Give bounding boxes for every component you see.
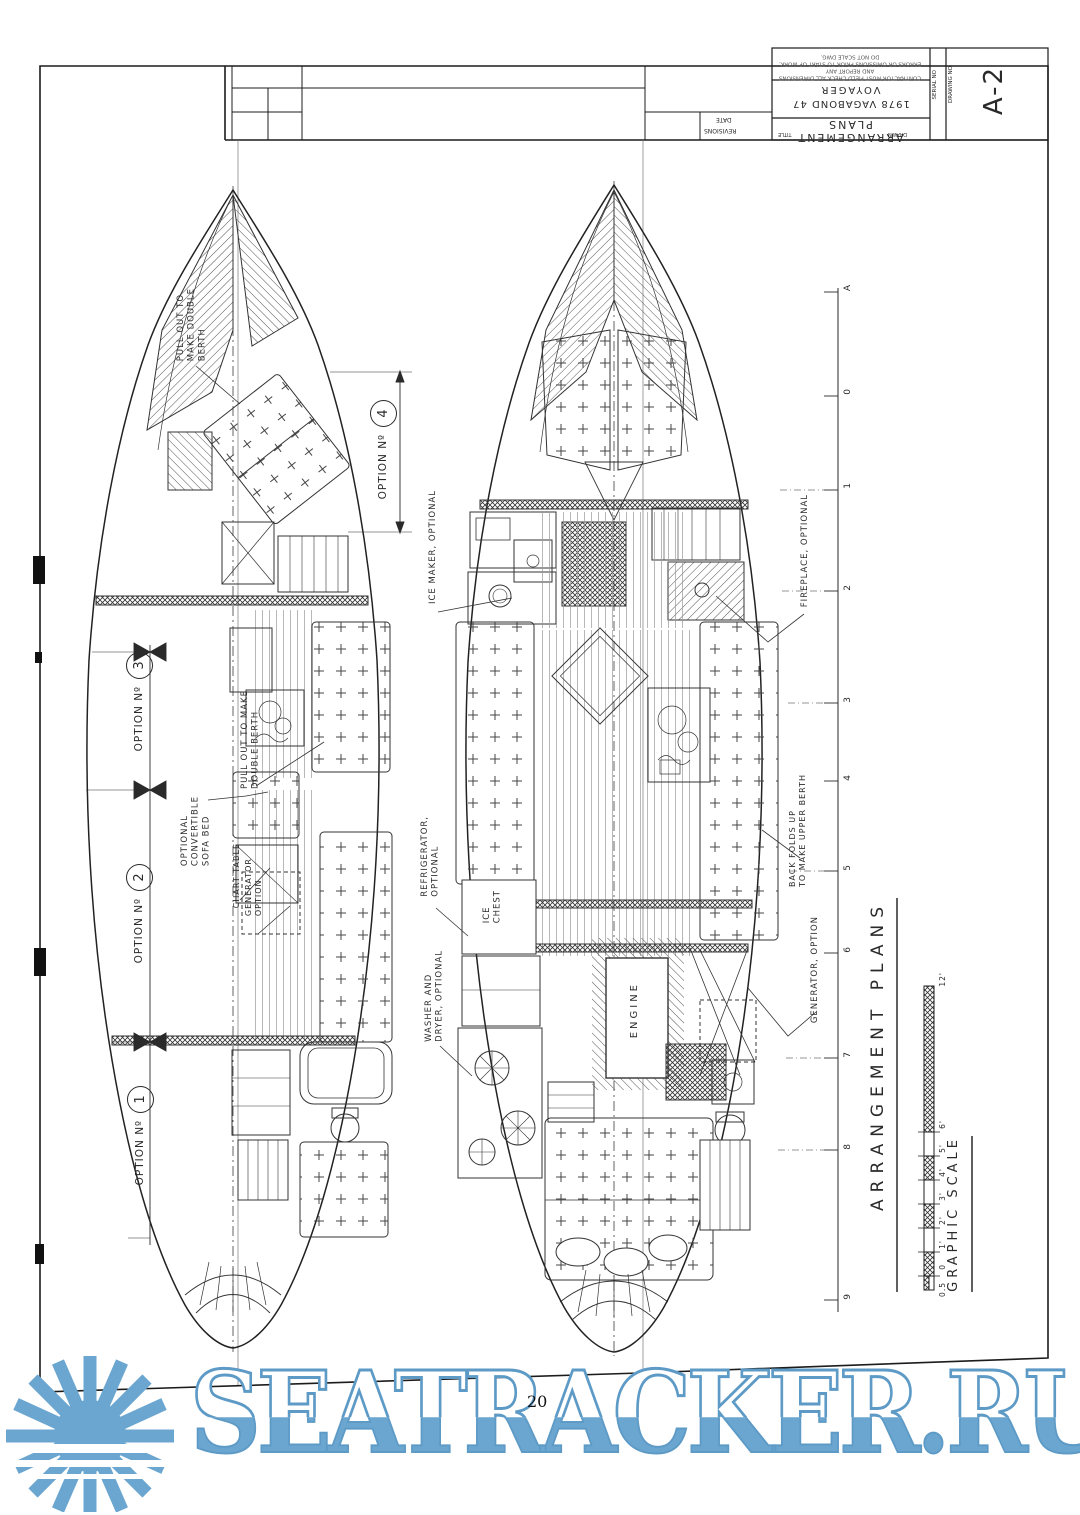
station-label-2: 2: [843, 584, 854, 591]
station-label-3: 3: [843, 696, 854, 703]
option-1-number: 1: [127, 1086, 154, 1113]
date-label: DATE: [716, 116, 732, 123]
page-number: 20: [527, 1392, 547, 1411]
seatracker-sun-logo-icon: [2, 1352, 188, 1512]
station-line: [778, 288, 838, 1312]
pull-out-berth-note: PULL OUT TO MAKE DOUBLE BERTH: [176, 288, 208, 361]
drawing-no-label: DRAWING NO: [948, 66, 955, 103]
scale-tick-2: 2': [938, 1216, 947, 1225]
boat-name-line-1: VOYAGER: [800, 84, 900, 95]
graphic-scale-label: GRAPHIC SCALE: [946, 1136, 962, 1292]
arrangement-drawing: [0, 0, 1080, 1515]
option-2-label: OPTION Nº: [133, 898, 146, 963]
option-1-digit: 1: [133, 1095, 148, 1103]
refrigerator-note: REFRIGERATOR, OPTIONAL: [420, 816, 441, 897]
graphic-scale-bar: [918, 986, 940, 1290]
station-label-a: A: [843, 284, 854, 291]
main-plan-interior: [456, 190, 778, 1320]
note-line-2: ERRORS OR OMISSIONS PRIOR TO START OF WO…: [774, 52, 926, 66]
scale-tick-4: 4': [938, 1168, 947, 1177]
footer-drawing-title: ARRANGEMENT PLANS: [868, 900, 889, 1211]
scale-tick-0: 0: [938, 1264, 947, 1270]
station-label-8: 8: [843, 1143, 854, 1150]
option-4-number: 4: [370, 400, 397, 427]
ice-chest-label: ICE CHEST: [482, 890, 503, 923]
chart-table-note: CHART TABLE: [232, 843, 242, 908]
ice-maker-note: ICE MAKER, OPTIONAL: [428, 490, 439, 604]
drawing-number: A-2: [978, 66, 1011, 115]
station-label-4: 4: [843, 774, 854, 781]
engine-label: ENGINE: [629, 982, 642, 1038]
scale-tick-3: 3': [938, 1192, 947, 1201]
station-label-1: 1: [843, 482, 854, 489]
option-2-digit: 2: [132, 873, 147, 881]
drawn-label: DRAWN: [888, 131, 907, 137]
scale-tick-12: 12': [938, 972, 947, 987]
option-4-label: OPTION Nº: [377, 434, 390, 499]
fold-out-berth-note: PULL OUT TO MAKE DOUBLE BERTH: [240, 690, 261, 789]
station-label-6: 6: [843, 946, 854, 953]
generator-option-note-left: GENERATOR OPTION: [244, 858, 264, 916]
generator-option-note-right: GENERATOR, OPTION: [810, 916, 821, 1023]
washer-dryer-note: WASHER AND DRYER, OPTIONAL: [424, 950, 445, 1042]
station-label-7: 7: [843, 1051, 854, 1058]
drawing-sheet: CONTRACTOR MUST FIELD CHECK ALL DIMENSIO…: [0, 0, 1080, 1515]
boat-name-line-2: 1978 VAGABOND 47: [778, 98, 924, 109]
station-label-0: 0: [843, 388, 854, 395]
revisions-label: REVISIONS: [704, 127, 736, 134]
revision-strip-grid: [232, 66, 772, 140]
title-block-notes: CONTRACTOR MUST FIELD CHECK ALL DIMENSIO…: [774, 52, 926, 81]
option-2-number: 2: [126, 864, 153, 891]
note-line-1: CONTRACTOR MUST FIELD CHECK ALL DIMENSIO…: [774, 66, 926, 80]
serial-no-label: SERIAL NO: [932, 70, 939, 99]
scale-tick-1: 1': [938, 1240, 947, 1249]
title-label: TITLE: [778, 131, 792, 137]
watermark: SEATRACKER.RU SEATRACKER.RU: [190, 1352, 1080, 1512]
station-label-9: 9: [843, 1293, 854, 1300]
sofa-bed-note: OPTIONAL CONVERTIBLE SOFA BED: [180, 796, 212, 866]
upper-berth-note: BACK FOLDS UP TO MAKE UPPER BERTH: [788, 774, 808, 887]
scale-tick-5: 5': [938, 1144, 947, 1153]
option-1-label: OPTION Nº: [134, 1120, 147, 1185]
fireplace-note: FIREPLACE, OPTIONAL: [800, 494, 811, 607]
scale-tick-6: 6': [938, 1120, 947, 1129]
option-3-number: 3: [126, 652, 153, 679]
option-3-digit: 3: [132, 661, 147, 669]
option-4-digit: 4: [376, 409, 391, 417]
station-label-5: 5: [843, 864, 854, 871]
scale-tick-05: 0.5: [938, 1282, 947, 1297]
option-3-label: OPTION Nº: [133, 686, 146, 751]
